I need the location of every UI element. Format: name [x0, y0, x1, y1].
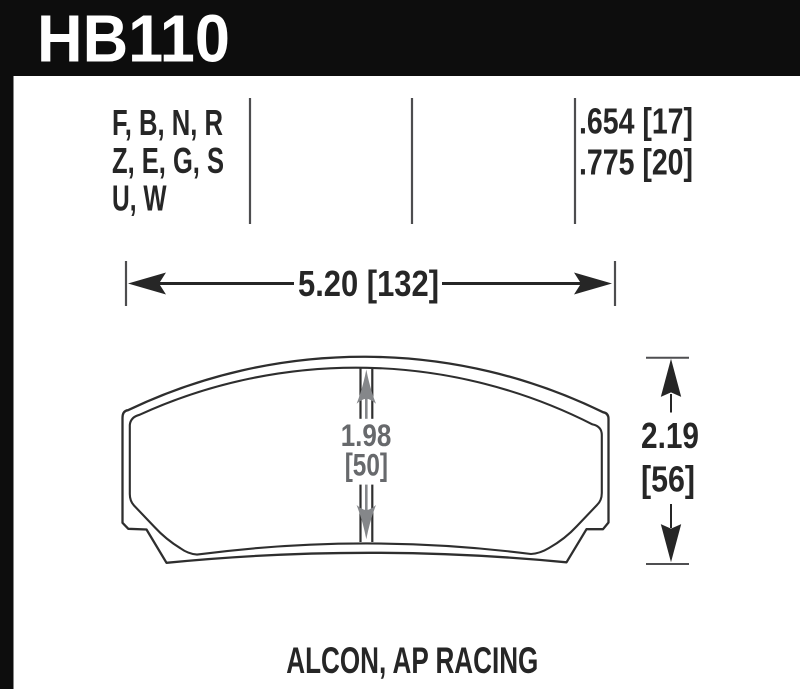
- svg-text:[56]: [56]: [641, 458, 695, 499]
- svg-text:F, B, N, R: F, B, N, R: [112, 102, 223, 143]
- svg-text:[50]: [50]: [345, 448, 388, 483]
- svg-text:5.20 [132]: 5.20 [132]: [298, 263, 439, 304]
- svg-text:.775 [20]: .775 [20]: [579, 142, 693, 183]
- svg-text:HB110: HB110: [37, 2, 230, 77]
- svg-text:Z, E, G, S: Z, E, G, S: [112, 140, 224, 181]
- svg-text:.654 [17]: .654 [17]: [579, 101, 693, 142]
- svg-text:U, W: U, W: [112, 178, 167, 219]
- svg-text:ALCON, AP RACING: ALCON, AP RACING: [286, 640, 538, 681]
- svg-text:2.19: 2.19: [641, 415, 699, 456]
